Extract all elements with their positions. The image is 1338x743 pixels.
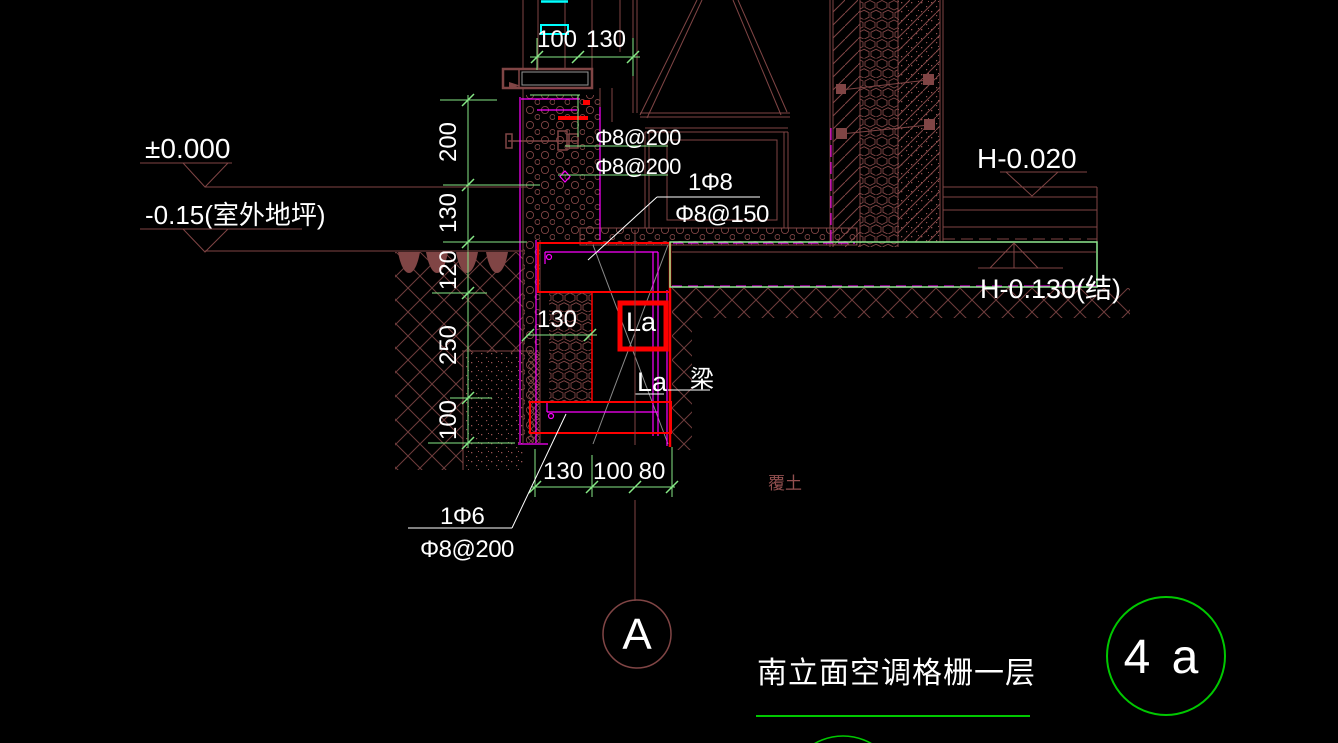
dim-wall-130[interactable]: 130 (537, 306, 577, 333)
rebar-red-dot (583, 100, 590, 105)
rebar-wall-bottom-label[interactable]: Φ8@200 (595, 154, 681, 179)
rebar-red-mark[interactable] (558, 116, 588, 120)
dim-left-130[interactable]: 130 (435, 193, 462, 233)
dim-top-100[interactable]: 100 (537, 26, 577, 53)
detail-number[interactable]: 4 a (1124, 631, 1203, 684)
rebar-slab-bar-label[interactable]: 1Φ8 (688, 169, 732, 196)
wall-insulation (860, 0, 898, 247)
dim-bottom-130[interactable]: 130 (543, 458, 583, 485)
level-zero-label[interactable]: ±0.000 (145, 133, 230, 164)
beam-char-label[interactable]: 梁 (690, 366, 714, 393)
dim-bottom-100[interactable]: 100 (593, 458, 633, 485)
dim-left-200[interactable]: 200 (435, 122, 462, 162)
exterior-wall[interactable] (830, 0, 943, 247)
cad-canvas[interactable]: 100 130 200 130 120 250 100 130 130 100 … (0, 0, 1338, 743)
level-indoor-label[interactable]: H-0.020 (977, 143, 1077, 174)
rebar-base-mesh-label[interactable]: Φ8@200 (420, 536, 514, 563)
dim-left-120[interactable]: 120 (435, 250, 462, 290)
cover-soil-label[interactable]: 覆土 (768, 474, 802, 493)
dim-left-100[interactable]: 100 (435, 400, 462, 440)
rebar-wall-top-label[interactable]: Φ8@200 (595, 125, 681, 150)
rebar-slab-mesh-label[interactable]: Φ8@150 (675, 201, 769, 228)
drawing-title[interactable]: 南立面空调格栅一层 (757, 657, 1036, 690)
la-leader-label[interactable]: La (637, 367, 668, 397)
dim-top-130[interactable]: 130 (586, 26, 626, 53)
la-boxed-label[interactable]: La (626, 307, 657, 337)
level-structural-label[interactable]: H-0.130(结) (980, 274, 1121, 304)
level-outdoor-label[interactable]: -0.15(室外地坪) (145, 200, 326, 230)
dim-left-250[interactable]: 250 (435, 325, 462, 365)
axis-letter[interactable]: A (622, 610, 652, 659)
rebar-base-bar-label[interactable]: 1Φ6 (440, 503, 484, 530)
dim-bottom-80[interactable]: 80 (639, 458, 666, 485)
